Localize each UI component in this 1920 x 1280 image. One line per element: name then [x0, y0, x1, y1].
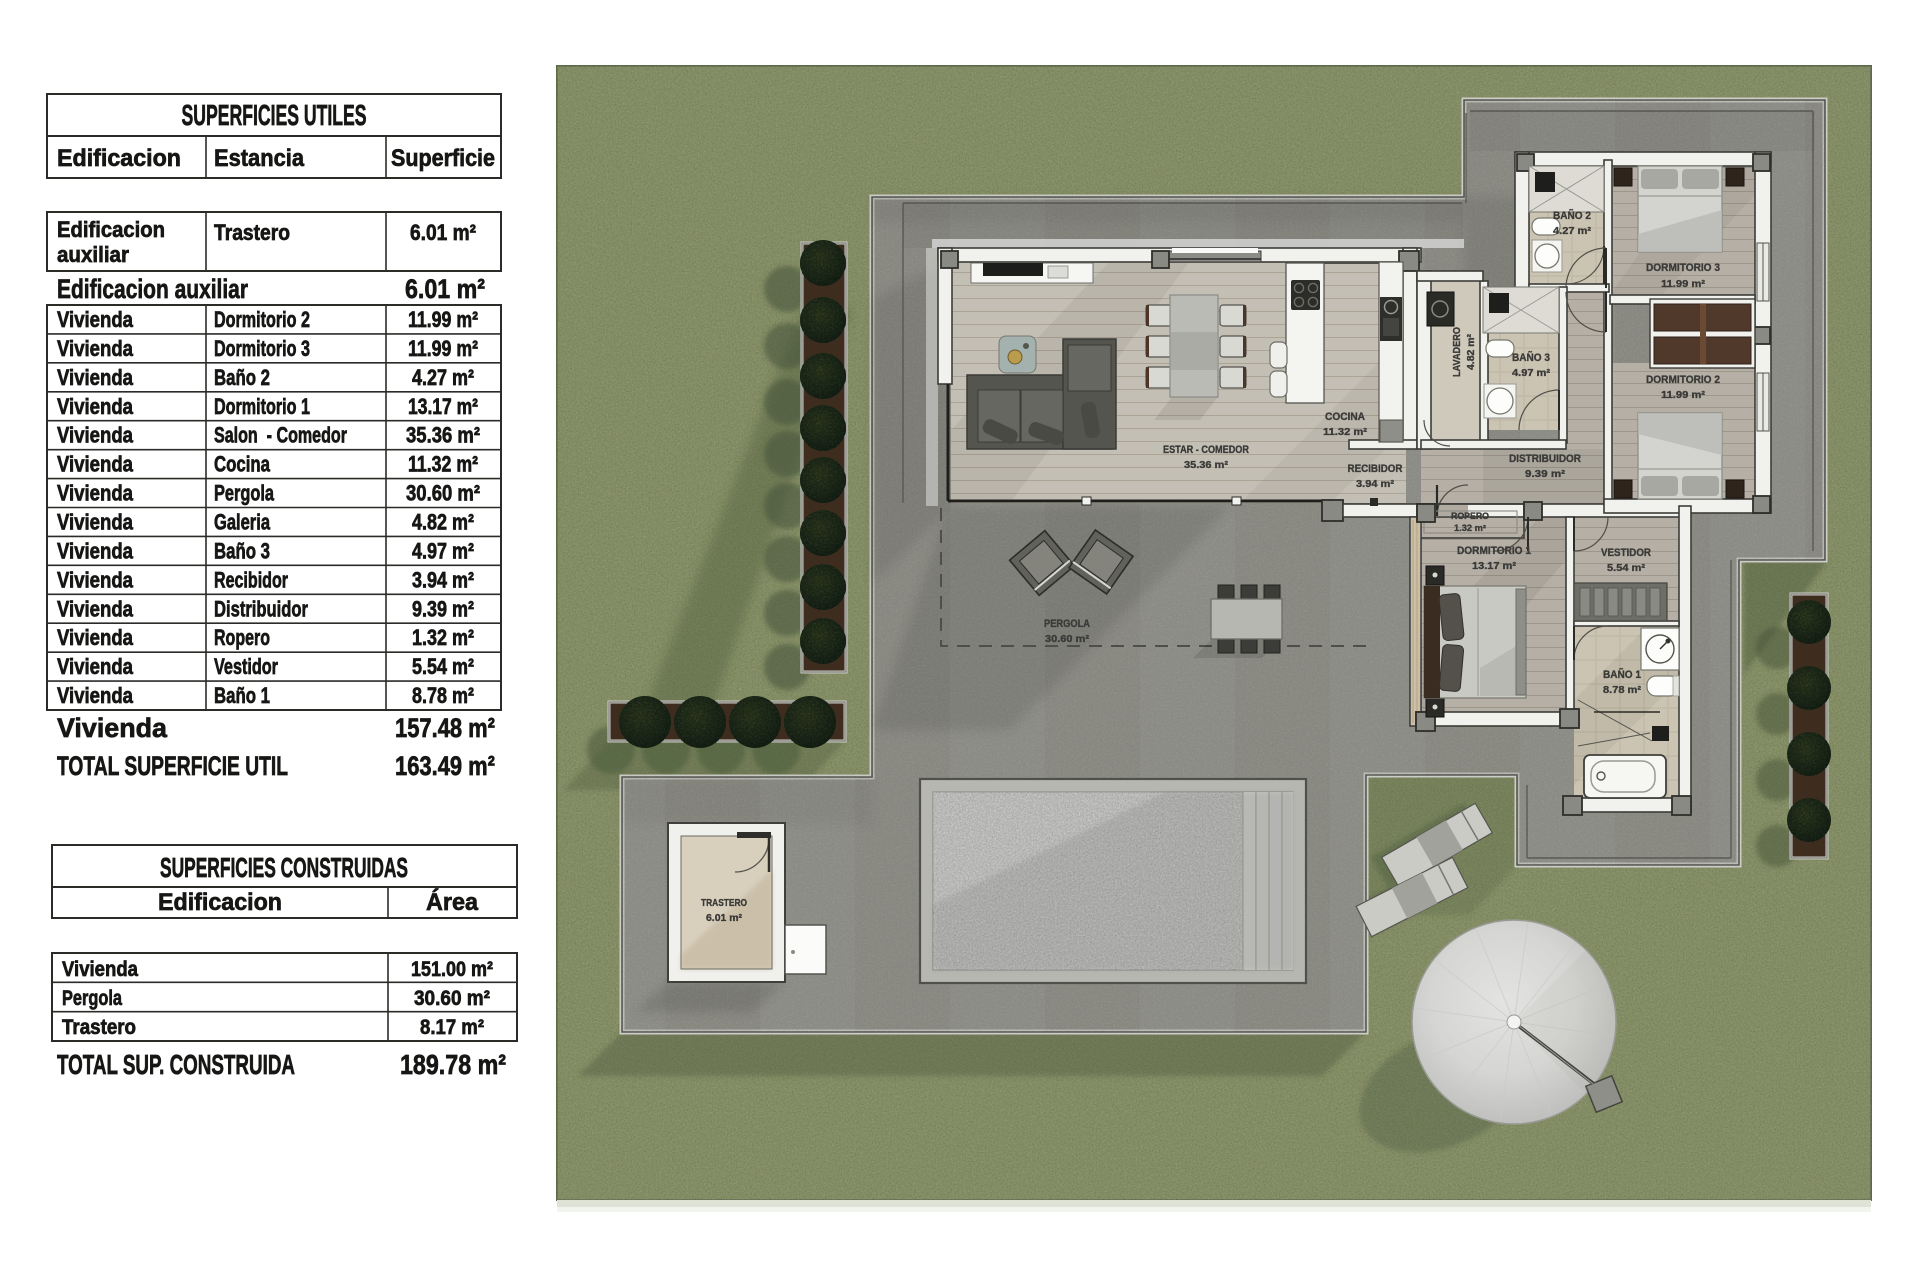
svg-text:SUPERFICIES UTILES: SUPERFICIES UTILES	[182, 100, 367, 132]
svg-text:11.99 m²: 11.99 m²	[1661, 278, 1706, 290]
svg-text:11.32 m²: 11.32 m²	[1323, 426, 1368, 438]
svg-text:DORMITORIO 2: DORMITORIO 2	[1646, 374, 1720, 386]
svg-text:Vivienda: Vivienda	[57, 538, 134, 563]
svg-text:Cocina: Cocina	[214, 452, 271, 477]
svg-text:Baño 1: Baño 1	[214, 683, 270, 708]
svg-text:SUPERFICIES CONSTRUIDAS: SUPERFICIES CONSTRUIDAS	[160, 852, 408, 883]
svg-text:LAVADERO: LAVADERO	[1451, 327, 1463, 377]
svg-text:Estancia: Estancia	[214, 145, 305, 172]
svg-text:1.32 m²: 1.32 m²	[1454, 523, 1486, 533]
svg-text:VESTIDOR: VESTIDOR	[1601, 547, 1651, 559]
svg-text:TRASTERO: TRASTERO	[701, 897, 747, 909]
svg-text:35.36 m²: 35.36 m²	[1184, 459, 1229, 471]
svg-text:RECIBIDOR: RECIBIDOR	[1348, 463, 1403, 475]
svg-text:Edificacion auxiliar: Edificacion auxiliar	[57, 274, 248, 304]
svg-text:3.94 m²: 3.94 m²	[412, 567, 474, 592]
svg-text:9.39 m²: 9.39 m²	[1525, 468, 1566, 480]
svg-text:TOTAL SUP. CONSTRUIDA: TOTAL SUP. CONSTRUIDA	[57, 1049, 295, 1080]
svg-text:auxiliar: auxiliar	[57, 242, 129, 267]
svg-text:Vivienda: Vivienda	[57, 394, 134, 419]
svg-text:Distribuidor: Distribuidor	[214, 596, 308, 621]
svg-text:4.82 m²: 4.82 m²	[1466, 333, 1477, 370]
svg-text:151.00 m²: 151.00 m²	[411, 958, 493, 981]
svg-text:30.60 m²: 30.60 m²	[1045, 633, 1090, 645]
svg-text:Vivienda: Vivienda	[57, 567, 134, 592]
svg-text:DORMITORIO 1: DORMITORIO 1	[1457, 545, 1531, 557]
svg-text:BAÑO 1: BAÑO 1	[1603, 668, 1641, 681]
svg-text:Trastero: Trastero	[62, 1016, 136, 1039]
svg-text:3.94 m²: 3.94 m²	[1356, 478, 1395, 490]
svg-text:Galeria: Galeria	[214, 509, 271, 534]
svg-text:ROPERO: ROPERO	[1451, 511, 1489, 522]
svg-text:Superficie: Superficie	[391, 145, 495, 172]
svg-text:Vestidor: Vestidor	[214, 654, 278, 679]
svg-text:Edificacion: Edificacion	[158, 889, 282, 916]
svg-text:Vivienda: Vivienda	[57, 713, 168, 743]
svg-text:Vivienda: Vivienda	[57, 336, 134, 361]
svg-text:Recibidor: Recibidor	[214, 567, 288, 592]
svg-text:Dormitorio 2: Dormitorio 2	[214, 307, 310, 332]
svg-text:Baño 2: Baño 2	[214, 365, 270, 390]
svg-text:30.60 m²: 30.60 m²	[414, 987, 490, 1010]
svg-text:Vivienda: Vivienda	[57, 654, 134, 679]
svg-text:ESTAR - COMEDOR: ESTAR - COMEDOR	[1163, 444, 1249, 456]
svg-text:DORMITORIO 3: DORMITORIO 3	[1646, 262, 1720, 274]
svg-text:BAÑO 3: BAÑO 3	[1512, 351, 1550, 364]
svg-text:4.27 m²: 4.27 m²	[1553, 225, 1592, 237]
svg-text:6.01 m²: 6.01 m²	[410, 220, 476, 245]
svg-text:PERGOLA: PERGOLA	[1044, 618, 1090, 630]
svg-text:BAÑO 2: BAÑO 2	[1553, 209, 1591, 222]
svg-text:Área: Área	[426, 888, 479, 916]
svg-text:DISTRIBUIDOR: DISTRIBUIDOR	[1509, 453, 1581, 465]
svg-text:5.54 m²: 5.54 m²	[412, 654, 474, 679]
svg-text:Ropero: Ropero	[214, 625, 270, 650]
svg-text:1.32 m²: 1.32 m²	[412, 625, 474, 650]
svg-text:Edificacion: Edificacion	[57, 217, 165, 242]
svg-text:Baño 3: Baño 3	[214, 538, 270, 563]
svg-text:9.39 m²: 9.39 m²	[412, 596, 474, 621]
svg-text:157.48 m²: 157.48 m²	[395, 713, 495, 743]
svg-text:189.78 m²: 189.78 m²	[400, 1049, 506, 1080]
svg-text:Dormitorio 3: Dormitorio 3	[214, 336, 310, 361]
svg-text:11.99 m²: 11.99 m²	[408, 307, 478, 332]
svg-text:Vivienda: Vivienda	[57, 596, 134, 621]
svg-text:8.78 m²: 8.78 m²	[1603, 684, 1642, 696]
svg-text:Vivienda: Vivienda	[57, 452, 134, 477]
svg-text:30.60 m²: 30.60 m²	[406, 481, 480, 506]
svg-text:Vivienda: Vivienda	[57, 365, 134, 390]
svg-text:Vivienda: Vivienda	[62, 958, 138, 981]
svg-text:TOTAL SUPERFICIE UTIL: TOTAL SUPERFICIE UTIL	[57, 751, 288, 781]
svg-text:Vivienda: Vivienda	[57, 683, 134, 708]
svg-text:8.78 m²: 8.78 m²	[412, 683, 474, 708]
svg-text:11.99 m²: 11.99 m²	[408, 336, 478, 361]
svg-text:COCINA: COCINA	[1325, 411, 1365, 423]
svg-text:Pergola: Pergola	[214, 481, 275, 506]
svg-text:4.97 m²: 4.97 m²	[1512, 367, 1551, 379]
svg-text:35.36 m²: 35.36 m²	[406, 423, 480, 448]
svg-text:Trastero: Trastero	[214, 220, 290, 245]
svg-text:6.01 m²: 6.01 m²	[405, 274, 485, 304]
svg-text:4.82 m²: 4.82 m²	[412, 509, 474, 534]
svg-text:Pergola: Pergola	[62, 987, 122, 1010]
svg-text:163.49 m²: 163.49 m²	[395, 751, 495, 781]
svg-text:11.99 m²: 11.99 m²	[1661, 389, 1706, 401]
svg-text:11.32 m²: 11.32 m²	[408, 452, 478, 477]
svg-text:8.17 m²: 8.17 m²	[420, 1016, 484, 1039]
svg-text:Dormitorio 1: Dormitorio 1	[214, 394, 310, 419]
svg-text:13.17 m²: 13.17 m²	[408, 394, 478, 419]
svg-text:Edificacion: Edificacion	[57, 145, 181, 172]
svg-text:Salon - Comedor: Salon - Comedor	[214, 423, 347, 448]
svg-text:Vivienda: Vivienda	[57, 423, 134, 448]
svg-text:6.01 m²: 6.01 m²	[706, 913, 743, 924]
svg-text:4.27 m²: 4.27 m²	[412, 365, 474, 390]
svg-text:5.54 m²: 5.54 m²	[1607, 562, 1646, 574]
svg-text:Vivienda: Vivienda	[57, 481, 134, 506]
svg-text:Vivienda: Vivienda	[57, 625, 134, 650]
svg-text:13.17 m²: 13.17 m²	[1472, 560, 1517, 572]
svg-text:4.97 m²: 4.97 m²	[412, 538, 474, 563]
svg-text:Vivienda: Vivienda	[57, 307, 134, 332]
svg-text:Vivienda: Vivienda	[57, 509, 134, 534]
